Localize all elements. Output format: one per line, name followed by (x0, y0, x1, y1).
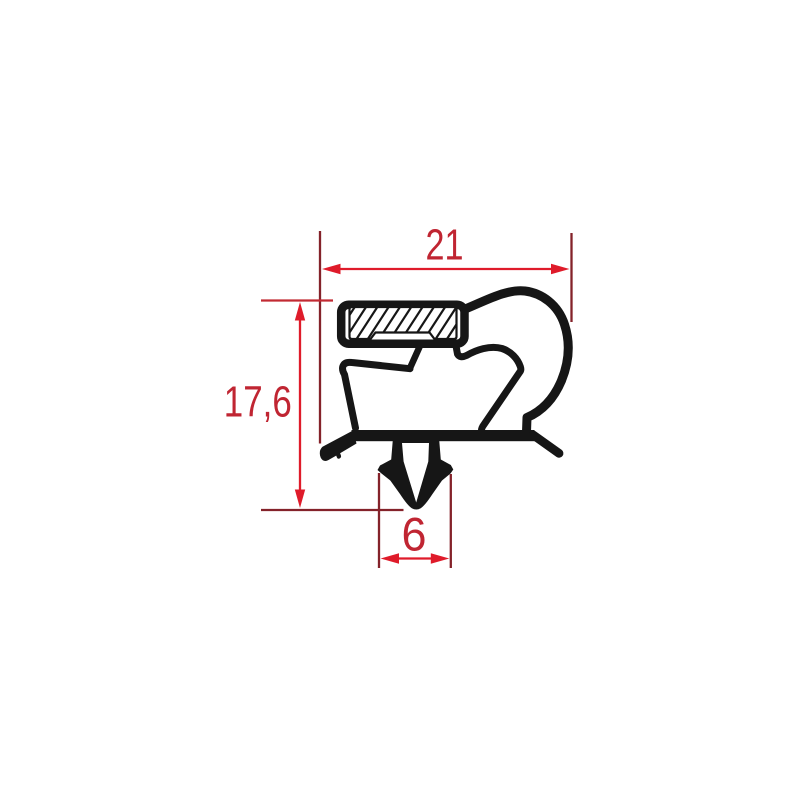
svg-text:6: 6 (402, 508, 427, 561)
svg-text:17,6: 17,6 (224, 378, 292, 427)
svg-text:21: 21 (426, 221, 464, 270)
